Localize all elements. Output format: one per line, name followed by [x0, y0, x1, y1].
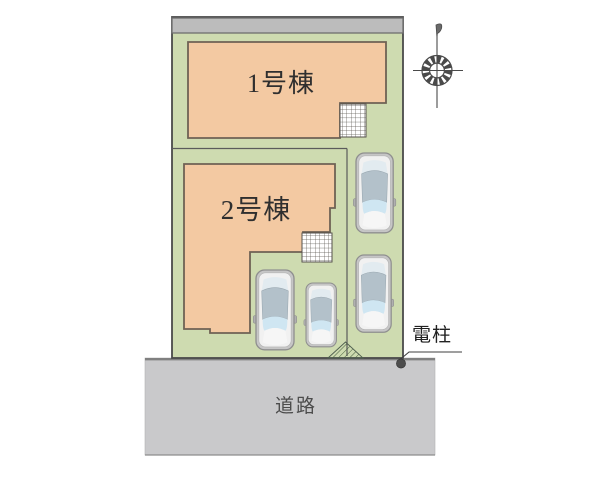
utility-pole-dot-icon	[396, 359, 405, 368]
car-icon	[354, 255, 394, 332]
neighbor-wall	[172, 18, 403, 33]
north-arrow-flag	[436, 24, 442, 38]
building1-deck-grid	[340, 104, 366, 137]
site-plan: 1号棟 2号棟 道路 電柱	[0, 0, 600, 481]
car-icon	[353, 153, 395, 233]
building1-label: 1号棟	[247, 70, 315, 99]
road-label: 道路	[275, 397, 317, 418]
compass-icon	[413, 24, 463, 108]
car-icon	[304, 283, 339, 347]
building2-label: 2号棟	[221, 196, 292, 226]
utility-pole-label: 電柱	[412, 326, 452, 347]
car-icon	[253, 270, 296, 350]
building2-deck-grid	[302, 233, 332, 262]
